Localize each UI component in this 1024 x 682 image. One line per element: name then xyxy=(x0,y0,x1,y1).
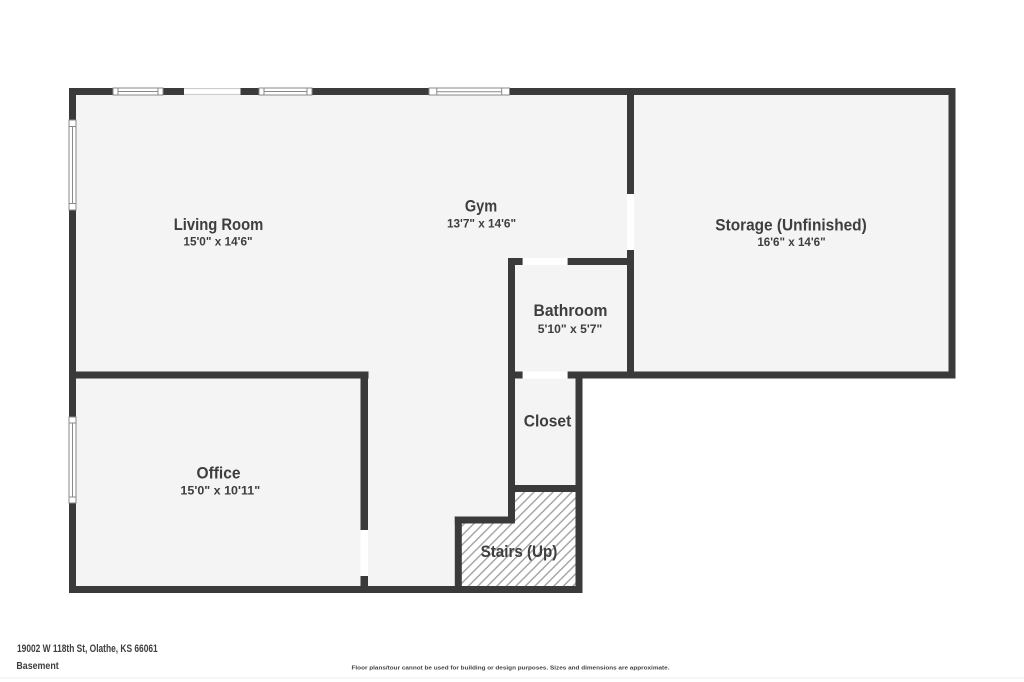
svg-text:16'6" x 14'6": 16'6" x 14'6" xyxy=(757,235,825,249)
svg-text:5'10" x 5'7": 5'10" x 5'7" xyxy=(538,322,603,336)
svg-text:Floor plans/tour cannot be use: Floor plans/tour cannot be used for buil… xyxy=(352,666,670,672)
svg-text:Living Room: Living Room xyxy=(174,216,264,234)
svg-text:Storage (Unfinished): Storage (Unfinished) xyxy=(715,217,866,235)
svg-text:15'0" x 10'11": 15'0" x 10'11" xyxy=(180,484,260,498)
svg-text:Stairs (Up): Stairs (Up) xyxy=(481,543,558,561)
svg-text:19002 W 118th St, Olathe, KS 6: 19002 W 118th St, Olathe, KS 66061 xyxy=(17,643,158,655)
svg-text:Closet: Closet xyxy=(524,413,572,431)
svg-text:Gym: Gym xyxy=(465,198,497,216)
svg-text:15'0" x 14'6": 15'0" x 14'6" xyxy=(183,235,252,249)
svg-text:Basement: Basement xyxy=(16,661,59,672)
svg-text:Bathroom: Bathroom xyxy=(534,302,608,320)
svg-text:13'7" x 14'6": 13'7" x 14'6" xyxy=(447,217,516,231)
svg-text:Office: Office xyxy=(197,465,241,483)
